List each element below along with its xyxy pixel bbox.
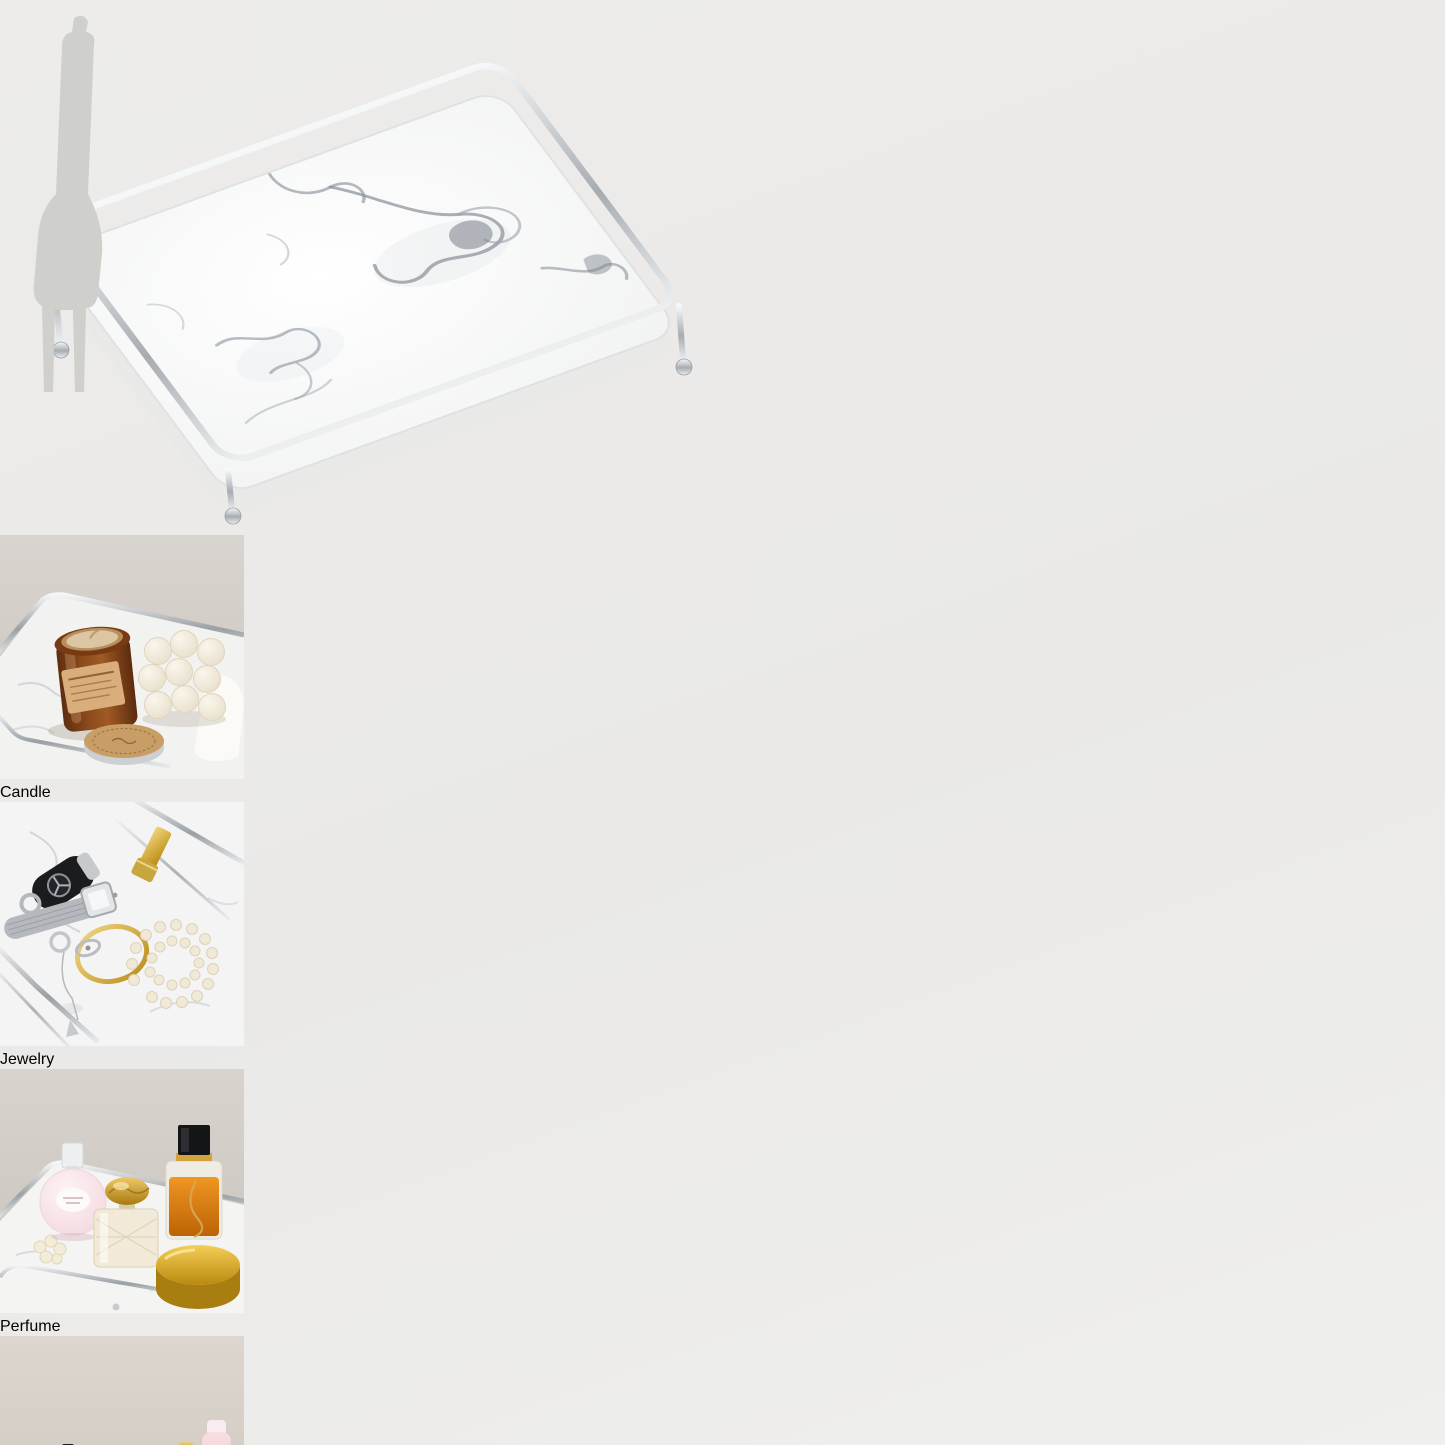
cosmetic-scene (0, 1336, 244, 1445)
cosmetic-photo-circle (0, 1336, 1445, 1445)
feature-label-candle: Candle (0, 784, 1445, 802)
feature-label-perfume: Perfume (0, 1318, 1445, 1336)
perfume-scene (0, 1069, 244, 1313)
feature-cosmetic: Cosmetic (0, 1336, 1445, 1445)
jewelry-scene (0, 802, 244, 1046)
feature-perfume: Perfume (0, 1069, 1445, 1336)
tray-marble-surface (45, 86, 680, 495)
feature-label-jewelry: Jewelry (0, 1051, 1445, 1069)
amber-jar-candle (53, 623, 139, 732)
marble-tray-product-photo (0, 0, 720, 530)
jewelry-photo-circle (0, 802, 1445, 1051)
candle-tin (84, 724, 164, 765)
product-feature-collage: Candle (0, 0, 1445, 1445)
feature-jewelry: Jewelry (0, 802, 1445, 1069)
feature-candle: Candle (0, 535, 1445, 802)
perfume-photo-circle (0, 1069, 1445, 1318)
bubble-cube-candle (139, 631, 226, 721)
candle-photo-circle (0, 535, 1445, 784)
gold-jar (156, 1245, 240, 1309)
candle-scene (0, 535, 244, 779)
